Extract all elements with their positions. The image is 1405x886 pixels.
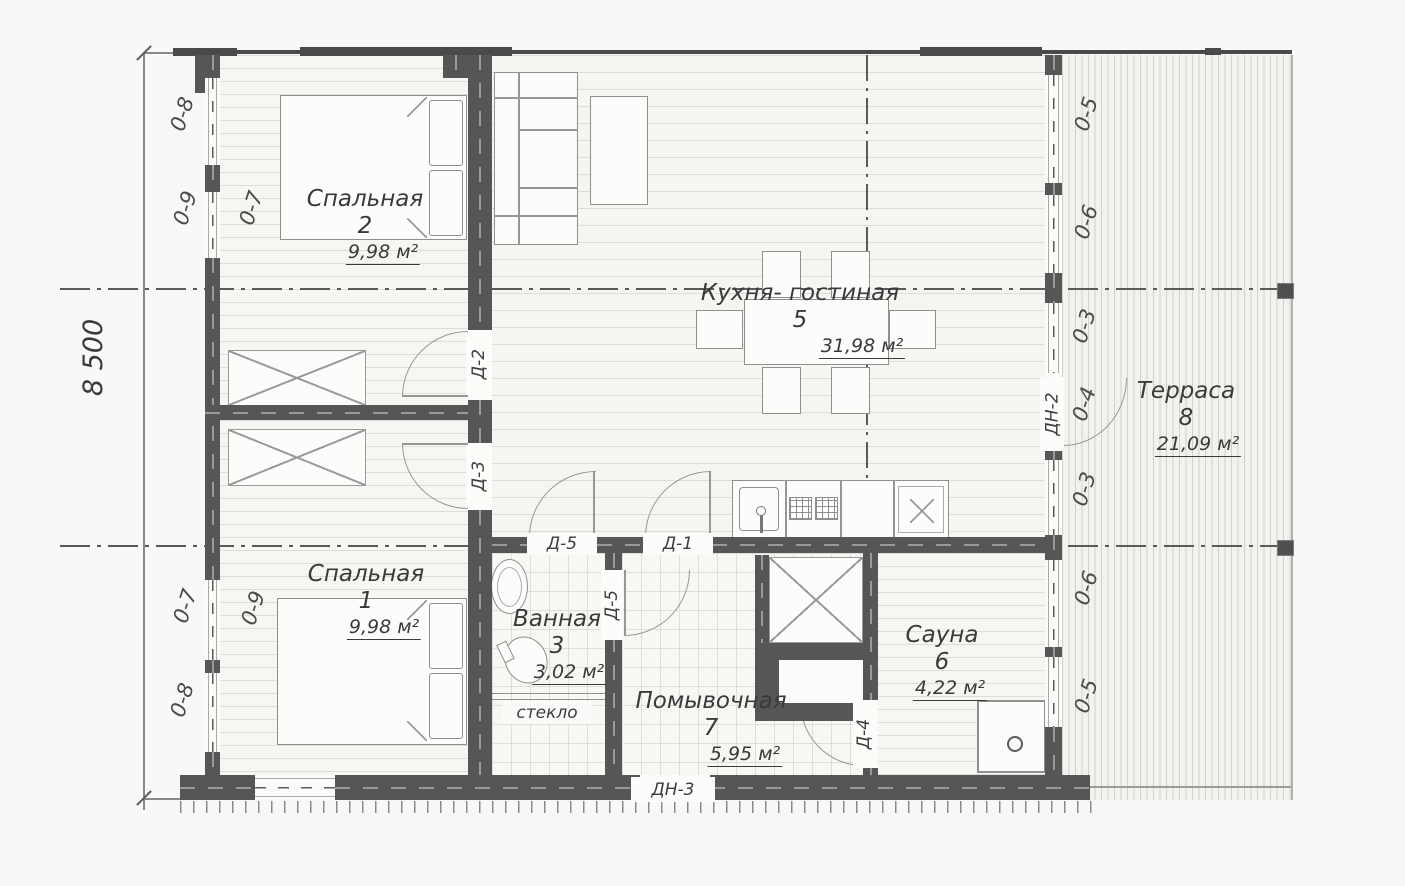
window-mark: 0-8 xyxy=(165,94,198,134)
glass-partition-line xyxy=(492,693,605,700)
hob-symbol xyxy=(789,497,812,520)
sofa-cushion-line xyxy=(494,215,578,217)
wall xyxy=(1045,450,1062,460)
wall xyxy=(1045,273,1062,303)
wall xyxy=(468,400,492,443)
wall xyxy=(920,47,1042,56)
window-opening xyxy=(205,673,220,752)
door-mark: Д-5 xyxy=(601,570,623,640)
wall xyxy=(1045,535,1062,560)
blanket-fold xyxy=(407,721,427,741)
wardrobe-symbol xyxy=(228,429,366,486)
wall xyxy=(1045,647,1062,657)
wall xyxy=(1045,183,1062,195)
door-leaf xyxy=(402,395,468,397)
window-opening xyxy=(205,580,220,660)
wall xyxy=(205,405,468,420)
chair-symbol xyxy=(762,367,801,414)
door-mark: Д-4 xyxy=(853,701,875,767)
wall xyxy=(712,537,1045,553)
wall xyxy=(597,537,645,553)
wall xyxy=(443,55,468,78)
window-mark: 0-9 xyxy=(168,188,201,228)
door-mark: Д-3 xyxy=(466,445,492,507)
window-opening xyxy=(1045,303,1062,373)
floor-plan: 8 500 xyxy=(0,0,1405,886)
window-opening xyxy=(255,775,335,800)
door-mark: ДН-2 xyxy=(1040,377,1064,451)
wall xyxy=(205,55,220,78)
heater-ring-icon xyxy=(1007,736,1023,752)
window-opening xyxy=(1045,75,1062,183)
room-label-bedroom2: Спальная 2 9,98 м² xyxy=(307,186,423,265)
bathroom-sink-inner xyxy=(497,567,522,607)
hob-symbol xyxy=(815,497,838,520)
room-label-washroom: Помывочная 7 5,95 м² xyxy=(635,688,786,767)
faucet-stem xyxy=(760,515,763,533)
terrace-post xyxy=(1277,283,1294,299)
coffee-table-symbol xyxy=(590,96,648,205)
door-mark: ДН-3 xyxy=(631,777,715,802)
wall xyxy=(468,510,492,775)
window-opening xyxy=(1045,460,1062,535)
window-mark: 0-8 xyxy=(165,680,198,720)
wall xyxy=(468,55,492,330)
room-label-terrace: Терраса 8 21,09 м² xyxy=(1137,378,1235,457)
wall xyxy=(1045,55,1062,75)
total-height-dimension: 8 500 xyxy=(78,319,109,396)
door-leaf xyxy=(593,471,595,537)
pillow-symbol xyxy=(429,100,463,166)
room-label-bedroom1: Спальная 1 9,98 м² xyxy=(308,561,424,640)
counter-divider xyxy=(893,480,895,538)
terrace-post xyxy=(1277,540,1294,556)
wall xyxy=(492,537,528,553)
sofa-cushion-line xyxy=(518,129,578,131)
pillow-symbol xyxy=(429,673,463,739)
window-opening xyxy=(1045,657,1062,727)
room-label-kitchen-living: Кухня- гостиная 5 31,98 м² xyxy=(701,280,899,359)
room-label-sauna: Сауна 6 4,22 м² xyxy=(905,622,979,701)
axis-line xyxy=(60,288,1292,290)
window-opening xyxy=(205,78,220,165)
wall xyxy=(180,775,255,800)
furnace-symbol xyxy=(769,557,863,643)
dimension-line xyxy=(143,52,145,810)
wall xyxy=(205,660,220,673)
foundation-ticks xyxy=(180,801,1092,813)
chair-symbol xyxy=(831,367,870,414)
wall xyxy=(863,768,878,775)
door-mark: Д-1 xyxy=(643,533,713,555)
door-leaf xyxy=(624,570,626,636)
counter-divider xyxy=(785,480,787,538)
glass-partition-label: стекло xyxy=(502,701,592,724)
window-opening xyxy=(205,192,220,258)
wall xyxy=(335,775,640,800)
wall xyxy=(1205,48,1221,55)
blanket-fold xyxy=(407,97,427,117)
wall xyxy=(710,775,1090,800)
appliance-x-icon xyxy=(910,499,934,523)
door-leaf xyxy=(402,443,468,445)
door-leaf xyxy=(709,471,711,537)
terrace-right-edge xyxy=(1291,55,1293,800)
wall xyxy=(863,553,878,700)
room-label-bathroom: Ванная 3 3,02 м² xyxy=(513,606,601,685)
wall xyxy=(205,165,220,192)
door-mark: Д-5 xyxy=(527,533,597,555)
furnace-mouth xyxy=(779,660,863,703)
sofa-cushion-line xyxy=(494,97,578,99)
window-mark: 0-7 xyxy=(168,586,201,626)
window-opening xyxy=(1045,195,1062,273)
door-mark: Д-2 xyxy=(466,333,492,395)
window-opening xyxy=(1045,560,1062,647)
counter-divider xyxy=(840,480,842,538)
sofa-cushion-line xyxy=(518,187,578,189)
terrace-edge-line xyxy=(1062,786,1292,788)
wardrobe-symbol xyxy=(228,350,366,406)
pillow-symbol xyxy=(429,170,463,236)
